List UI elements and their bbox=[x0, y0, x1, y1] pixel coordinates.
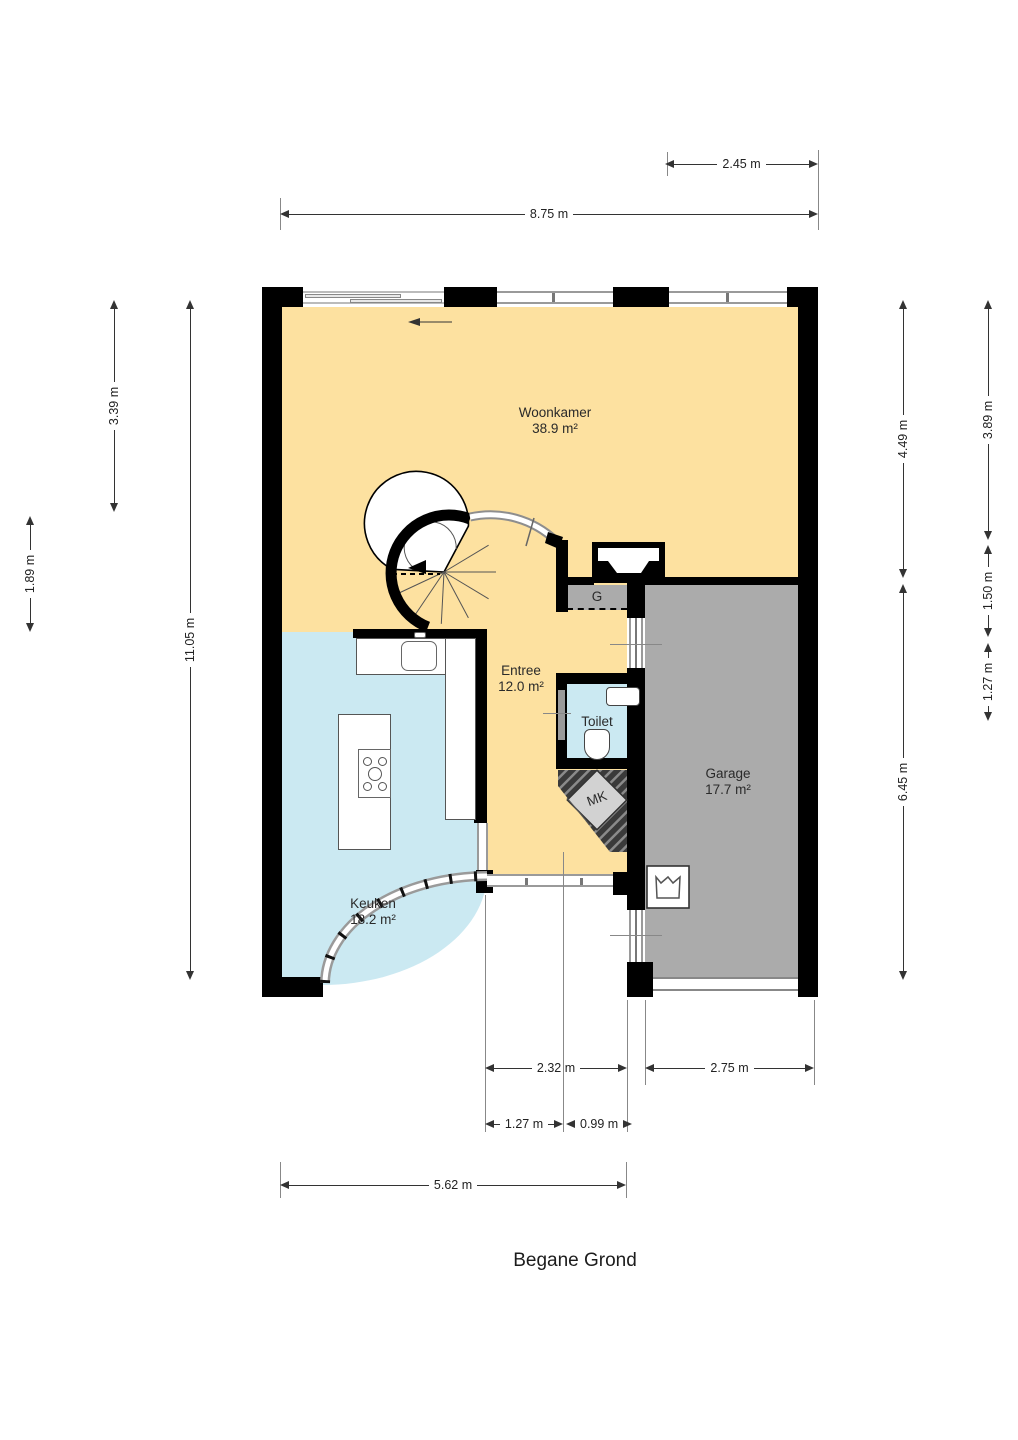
dimension-left-mid: 1.89 m bbox=[23, 516, 37, 632]
floor-woonkamer bbox=[282, 307, 798, 578]
room-name: Entree bbox=[501, 663, 541, 678]
extension-line bbox=[818, 150, 819, 230]
window-mullion bbox=[552, 293, 555, 302]
room-name: Woonkamer bbox=[519, 405, 592, 420]
room-area: 17.7 m² bbox=[688, 782, 768, 798]
dimension-top-full-width: 8.75 m bbox=[280, 207, 818, 221]
extension-line bbox=[485, 895, 486, 1132]
dimension-right-upper-inner: 3.89 m bbox=[981, 300, 995, 540]
extension-line bbox=[610, 935, 662, 936]
cooktop-icon bbox=[358, 749, 391, 798]
dimension-right-upper: 4.49 m bbox=[896, 300, 910, 578]
sliding-door-panel bbox=[305, 294, 401, 298]
garage-door bbox=[653, 977, 798, 991]
wall-toilet-bottom bbox=[556, 758, 627, 769]
extension-line bbox=[626, 1162, 627, 1198]
label-keuken: Keuken 18.2 m² bbox=[333, 896, 413, 928]
room-area: 38.9 m² bbox=[495, 421, 615, 437]
sliding-door-panel bbox=[350, 299, 442, 303]
wall-top-corner-left bbox=[282, 287, 303, 307]
kitchen-sink-icon bbox=[401, 641, 437, 671]
kitchen-faucet-icon bbox=[414, 632, 426, 638]
label-toilet: Toilet bbox=[567, 714, 627, 730]
label-woonkamer: Woonkamer 38.9 m² bbox=[495, 405, 615, 437]
window-mullion bbox=[525, 878, 528, 885]
window-mullion bbox=[726, 293, 729, 302]
dimension-bottom-full: 5.62 m bbox=[280, 1178, 626, 1192]
extension-line bbox=[814, 1000, 815, 1085]
extension-line bbox=[610, 644, 662, 645]
wall-entree-south-right bbox=[613, 872, 645, 895]
room-name: G bbox=[592, 589, 603, 604]
dimension-left-full-height: 11.05 m bbox=[183, 300, 197, 980]
wall-toilet-top bbox=[556, 673, 627, 684]
extension-line bbox=[563, 852, 564, 1132]
window-entree-south bbox=[487, 874, 613, 887]
kitchen-counter-side bbox=[445, 638, 476, 820]
wall-living-south bbox=[645, 577, 800, 585]
window-mullion bbox=[580, 878, 583, 885]
dimension-bottom-garage: 2.75 m bbox=[645, 1061, 814, 1075]
wall-garage-sw-corner bbox=[627, 962, 653, 997]
dimension-bottom-small-right: 0.99 m bbox=[566, 1117, 627, 1131]
wall-left bbox=[262, 287, 282, 997]
floor-woonkamer-lower bbox=[282, 578, 485, 632]
dimension-bottom-entree: 2.32 m bbox=[485, 1061, 627, 1075]
wall-top-pier-1 bbox=[444, 287, 497, 307]
dimension-bottom-small-left: 1.27 m bbox=[485, 1117, 563, 1131]
label-entree: Entree 12.0 m² bbox=[481, 663, 561, 695]
dimension-right-lower: 6.45 m bbox=[896, 584, 910, 980]
window-garage-west bbox=[629, 910, 643, 962]
window-kitchen-entree bbox=[477, 823, 488, 870]
room-area: 12.0 m² bbox=[481, 679, 561, 695]
window-mullion bbox=[635, 618, 637, 668]
label-g-closet: G bbox=[577, 589, 617, 605]
floor-plan: 2.45 m 8.75 m 3.39 m 1.89 m 11.05 m 4.49… bbox=[0, 0, 1018, 1440]
room-area: 18.2 m² bbox=[333, 912, 413, 928]
window-entree-garage bbox=[629, 618, 643, 668]
dimension-left-upper: 3.39 m bbox=[107, 300, 121, 512]
extension-line bbox=[627, 1000, 628, 1132]
room-name: Toilet bbox=[581, 714, 613, 729]
window-top-2 bbox=[669, 291, 787, 304]
wall-entree-garage-top bbox=[627, 581, 645, 618]
dimension-top-garage-width: 2.45 m bbox=[665, 157, 818, 171]
window-mullion bbox=[635, 910, 637, 962]
window-top-1 bbox=[497, 291, 613, 304]
dimension-right-mid-inner: 1.50 m bbox=[981, 545, 995, 637]
room-name: Garage bbox=[705, 766, 750, 781]
room-name: Keuken bbox=[350, 896, 396, 911]
sliding-door bbox=[303, 291, 444, 304]
wall-stair-right bbox=[556, 540, 568, 612]
label-garage: Garage 17.7 m² bbox=[688, 766, 768, 798]
wall-top-pier-2 bbox=[613, 287, 669, 307]
toilet-door bbox=[558, 690, 565, 740]
wall-garage-west bbox=[627, 895, 645, 910]
dimension-right-lower-inner: 1.27 m bbox=[981, 643, 995, 721]
wall-bottom-left-corner bbox=[262, 977, 323, 997]
toilet-sink-icon bbox=[606, 687, 640, 706]
page-title: Begane Grond bbox=[425, 1250, 725, 1272]
wall-right bbox=[798, 287, 818, 997]
toilet-icon bbox=[584, 729, 610, 760]
